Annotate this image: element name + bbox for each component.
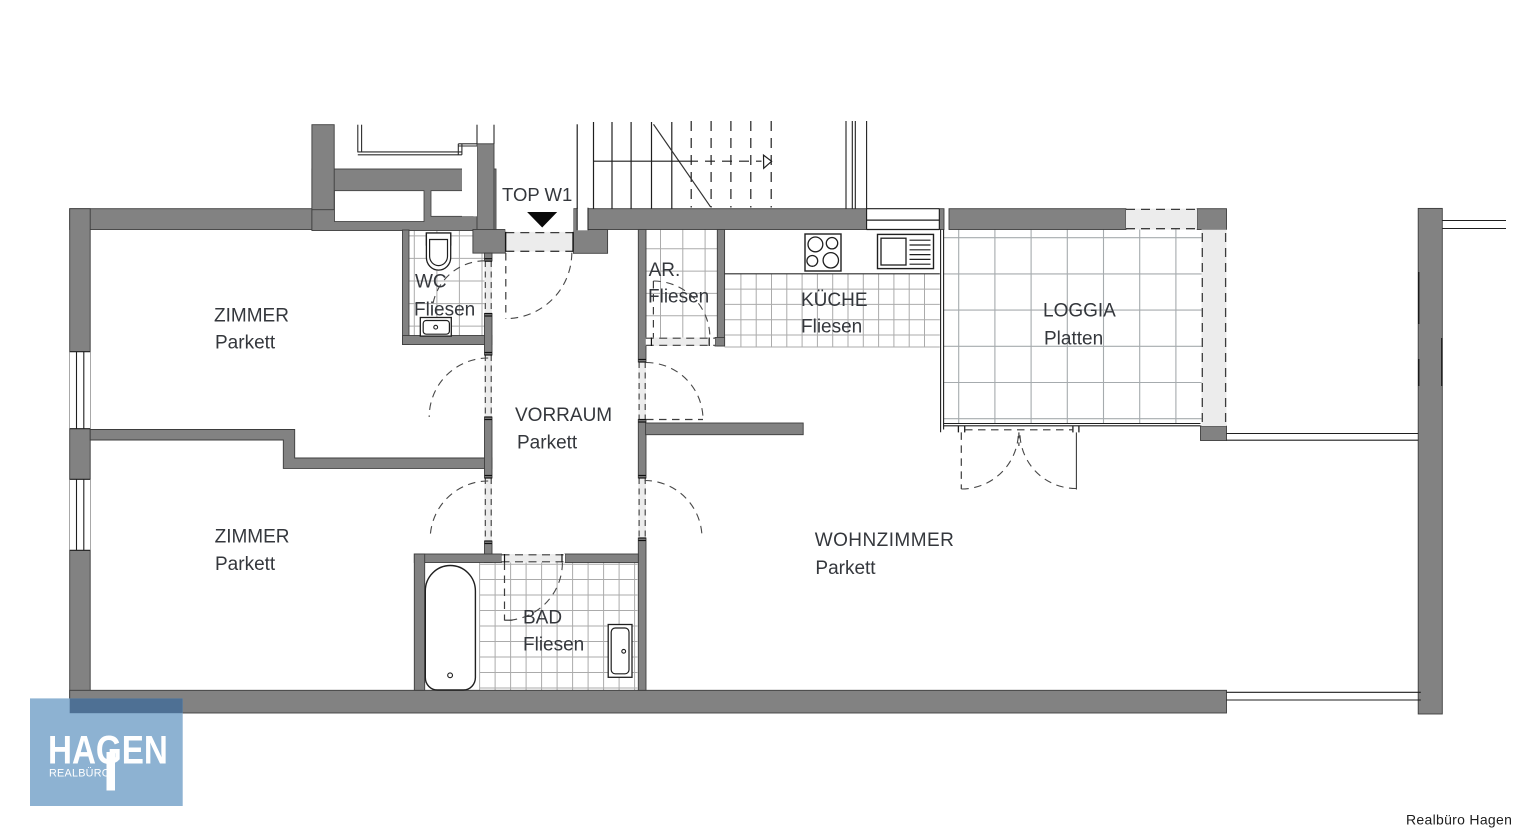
svg-text:Fliesen: Fliesen: [414, 300, 475, 321]
svg-text:VORRAUM: VORRAUM: [515, 405, 612, 426]
svg-text:KÜCHE: KÜCHE: [801, 290, 868, 311]
svg-text:REALBÜRO: REALBÜRO: [49, 767, 110, 779]
svg-text:Fliesen: Fliesen: [523, 635, 584, 656]
svg-text:ZIMMER: ZIMMER: [215, 527, 290, 548]
svg-text:AR.: AR.: [649, 260, 681, 281]
svg-text:Parkett: Parkett: [215, 554, 276, 575]
svg-text:Parkett: Parkett: [517, 433, 578, 454]
svg-text:Realbüro Hagen: Realbüro Hagen: [1406, 812, 1512, 828]
svg-text:Parkett: Parkett: [815, 558, 876, 579]
svg-text:TOP W1: TOP W1: [502, 184, 572, 205]
svg-text:Platten: Platten: [1044, 329, 1103, 350]
svg-text:LOGGIA: LOGGIA: [1043, 301, 1116, 322]
svg-text:Fliesen: Fliesen: [801, 317, 862, 338]
svg-text:ZIMMER: ZIMMER: [214, 306, 289, 327]
svg-text:Fliesen: Fliesen: [648, 287, 709, 308]
svg-text:WOHNZIMMER: WOHNZIMMER: [815, 530, 955, 551]
svg-text:Parkett: Parkett: [215, 333, 276, 354]
svg-text:WC: WC: [415, 272, 447, 293]
svg-text:BAD: BAD: [523, 608, 562, 629]
